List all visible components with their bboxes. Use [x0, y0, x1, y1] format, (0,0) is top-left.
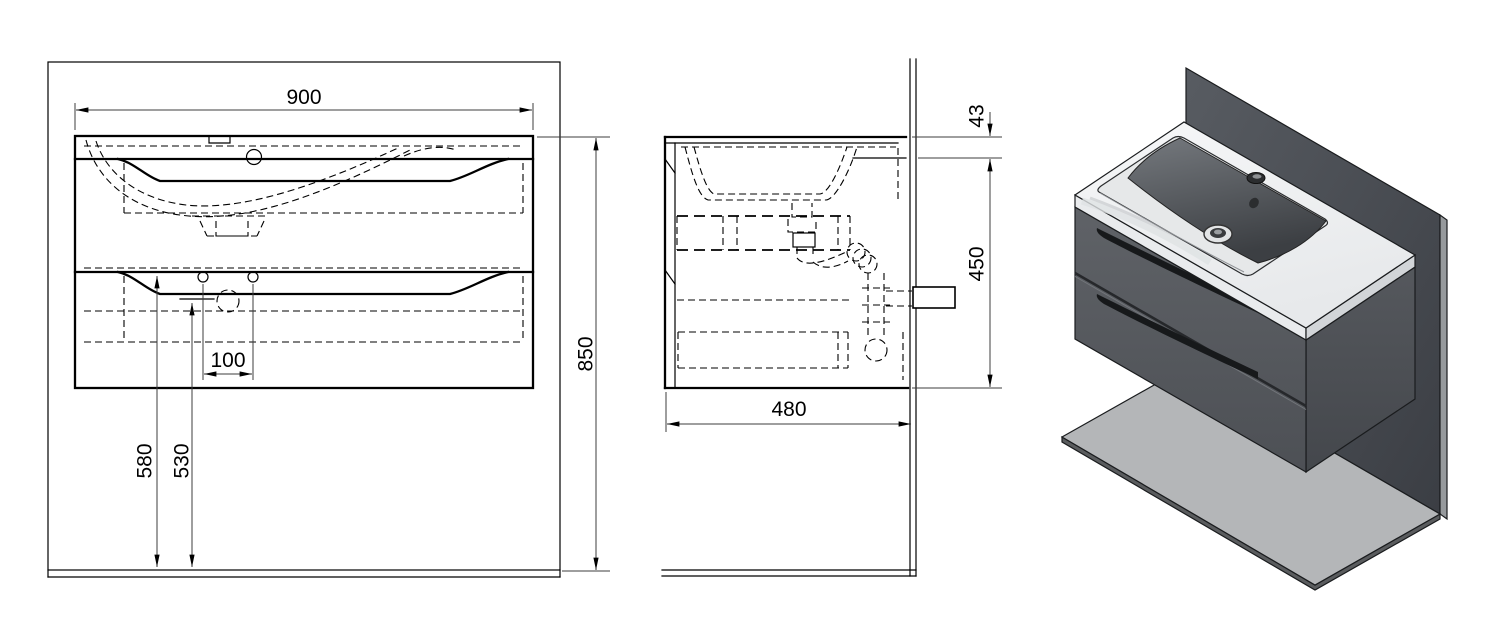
iso-drain [1214, 230, 1222, 235]
side-plumbing [797, 243, 955, 361]
dim-basin-height: 43 [966, 104, 989, 127]
dim-total-height: 850 [575, 336, 598, 371]
dim-cabinet-depth: 480 [771, 398, 806, 421]
side-washbasin [681, 147, 898, 247]
front-wall-and-floor [48, 62, 560, 577]
front-cabinet [75, 136, 533, 388]
dim-cabinet-width: 900 [286, 86, 321, 109]
iso-view [1062, 68, 1447, 590]
front-washbasin [86, 137, 456, 236]
side-dimensions: 43 450 480 [666, 104, 1002, 432]
vanity-drawing-svg: 900 850 100 580 530 [0, 0, 1500, 630]
dim-cabinet-body-height: 450 [966, 246, 989, 281]
technical-drawing-page: 900 850 100 580 530 [0, 0, 1500, 630]
dim-drain-offset: 100 [210, 349, 245, 372]
front-view: 900 850 100 580 530 [48, 62, 610, 577]
side-view: 43 450 480 [662, 59, 1002, 576]
side-cabinet [665, 137, 908, 388]
faucet-hole-front [247, 150, 262, 165]
wall-drain-outlet [913, 287, 955, 308]
dim-height-to-drain: 530 [171, 443, 194, 478]
dim-height-to-drawer-top: 580 [134, 443, 157, 478]
